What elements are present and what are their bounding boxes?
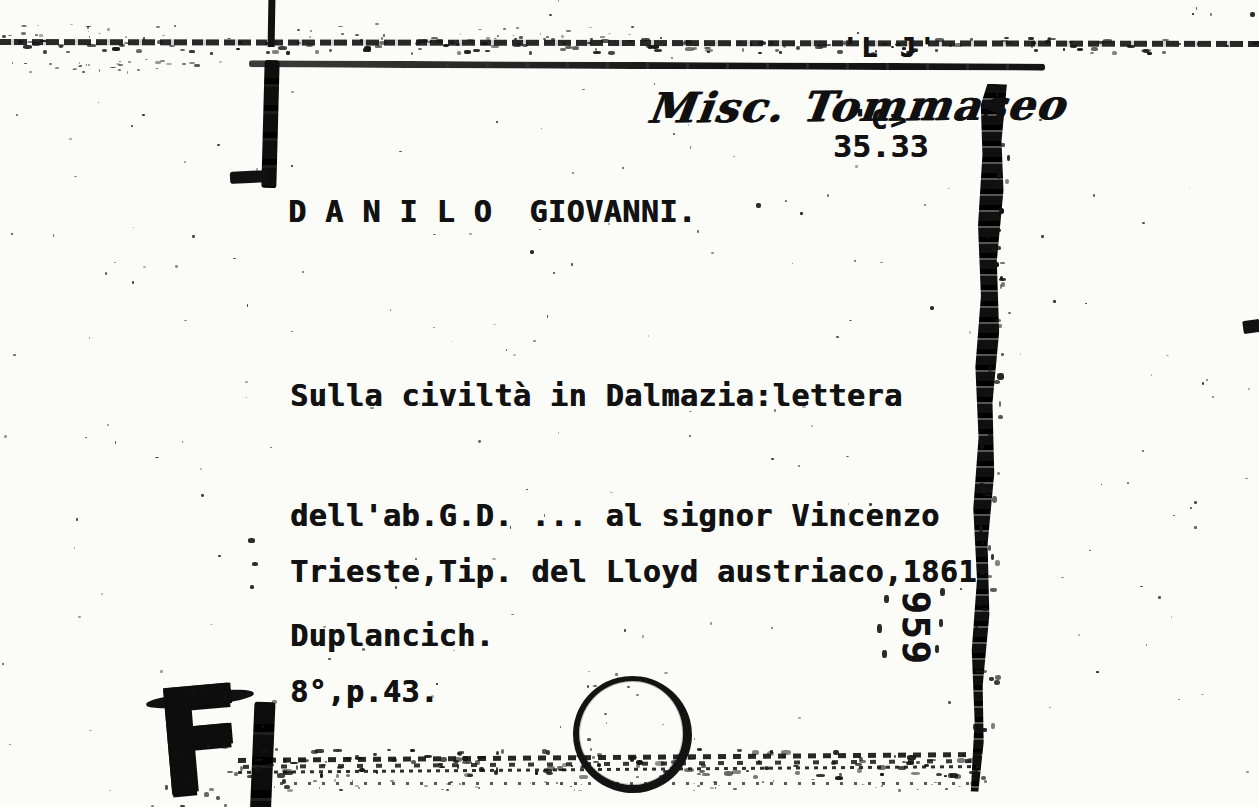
noise-speck	[1048, 37, 1051, 41]
noise-speck	[997, 172, 1001, 179]
noise-speck	[157, 40, 162, 44]
noise-speck	[689, 435, 691, 437]
noise-speck	[530, 250, 534, 254]
noise-speck	[98, 102, 99, 104]
noise-speck	[746, 770, 749, 772]
noise-speck	[311, 750, 318, 754]
noise-speck	[693, 790, 695, 791]
noise-speck	[994, 380, 1000, 384]
noise-speck	[631, 788, 633, 789]
noise-speck	[274, 786, 275, 788]
noise-speck	[990, 197, 995, 200]
noise-speck	[1192, 13, 1194, 14]
noise-speck	[783, 45, 786, 48]
noise-speck	[582, 761, 585, 765]
noise-speck	[410, 749, 415, 752]
noise-speck	[53, 234, 55, 237]
noise-speck	[204, 792, 209, 797]
noise-speck	[924, 764, 929, 767]
noise-speck	[315, 50, 319, 53]
noise-speck	[1069, 41, 1073, 43]
noise-speck	[802, 406, 805, 408]
noise-speck	[945, 788, 947, 789]
noise-speck	[1173, 515, 1175, 516]
noise-speck	[1085, 303, 1087, 304]
noise-speck	[630, 757, 634, 762]
noise-speck	[399, 151, 402, 152]
noise-speck	[461, 751, 464, 753]
noise-speck	[451, 341, 452, 342]
noise-speck	[359, 768, 365, 772]
noise-speck	[438, 763, 443, 766]
noise-speck	[969, 331, 971, 334]
noise-speck	[478, 787, 480, 789]
noise-speck	[931, 784, 933, 786]
noise-speck	[1178, 699, 1180, 700]
noise-speck	[971, 789, 973, 791]
noise-speck	[877, 624, 882, 633]
noise-speck	[948, 701, 951, 704]
noise-speck	[702, 773, 710, 776]
noise-speck	[837, 50, 843, 54]
noise-speck	[112, 47, 120, 50]
noise-speck	[936, 560, 937, 562]
noise-speck	[739, 41, 743, 45]
noise-speck	[119, 44, 125, 48]
noise-speck	[291, 331, 293, 332]
noise-speck	[590, 748, 592, 751]
noise-speck	[985, 575, 991, 578]
noise-speck	[433, 327, 435, 328]
noise-speck	[587, 42, 592, 44]
noise-speck	[601, 39, 609, 42]
noise-speck	[1166, 355, 1169, 356]
noise-speck	[97, 43, 99, 45]
noise-speck	[1206, 379, 1208, 380]
noise-speck	[836, 336, 839, 338]
noise-speck	[431, 37, 438, 39]
noise-speck	[431, 695, 434, 698]
noise-speck	[1001, 143, 1005, 146]
noise-speck	[319, 787, 321, 789]
noise-speck	[984, 553, 988, 558]
noise-speck	[597, 753, 602, 756]
noise-speck	[1049, 707, 1052, 708]
noise-speck	[440, 757, 447, 762]
noise-speck	[800, 212, 803, 215]
noise-speck	[758, 52, 762, 54]
noise-speck	[796, 46, 801, 50]
noise-speck	[255, 767, 261, 772]
noise-speck	[627, 40, 634, 42]
noise-speck	[446, 783, 449, 785]
noise-speck	[881, 43, 889, 46]
noise-speck	[137, 69, 139, 71]
noise-speck	[985, 276, 986, 277]
noise-speck	[948, 773, 953, 778]
noise-speck	[454, 757, 463, 762]
noise-speck	[189, 50, 195, 52]
noise-speck	[927, 759, 936, 761]
noise-speck	[204, 693, 207, 698]
noise-speck	[610, 492, 612, 493]
noise-speck	[513, 45, 522, 48]
noise-speck	[390, 309, 391, 310]
noise-speck	[452, 785, 453, 787]
noise-speck	[553, 272, 555, 274]
noise-speck	[994, 319, 1001, 322]
noise-speck	[256, 168, 258, 171]
noise-speck	[118, 64, 122, 66]
noise-speck	[513, 354, 516, 356]
noise-speck	[969, 771, 975, 774]
noise-speck	[2, 663, 4, 665]
noise-speck	[916, 761, 920, 764]
noise-speck	[88, 64, 91, 66]
noise-speck	[1089, 550, 1091, 551]
noise-speck	[681, 42, 689, 45]
noise-speck	[626, 785, 630, 786]
noise-speck	[395, 586, 397, 589]
noise-speck	[980, 670, 987, 673]
noise-speck	[206, 745, 210, 748]
noise-speck	[24, 63, 27, 64]
noise-speck	[248, 538, 255, 543]
noise-speck	[210, 52, 212, 55]
noise-speck	[648, 335, 650, 337]
noise-speck	[697, 773, 701, 775]
noise-speck	[529, 51, 532, 55]
noise-speck	[627, 791, 631, 792]
noise-speck	[827, 194, 830, 197]
noise-speck	[469, 233, 471, 235]
noise-speck	[935, 49, 937, 52]
noise-speck	[588, 671, 590, 672]
noise-speck	[184, 320, 187, 321]
noise-speck	[628, 34, 631, 35]
noise-speck	[530, 782, 531, 784]
noise-speck	[1189, 187, 1190, 188]
noise-speck	[996, 91, 998, 98]
noise-speck	[697, 230, 699, 232]
noise-speck	[988, 279, 994, 282]
noise-speck	[947, 188, 950, 189]
noise-speck	[991, 554, 994, 560]
noise-speck	[881, 782, 885, 783]
noise-speck	[173, 753, 176, 757]
noise-speck	[979, 525, 983, 531]
noise-speck	[136, 49, 142, 53]
noise-speck	[240, 766, 243, 771]
noise-speck	[107, 28, 110, 31]
noise-speck	[994, 680, 1000, 685]
noise-speck	[713, 781, 716, 783]
noise-speck	[266, 51, 271, 54]
noise-speck	[182, 63, 186, 65]
noise-speck	[269, 30, 273, 32]
noise-speck	[975, 626, 979, 629]
noise-speck	[420, 39, 429, 43]
noise-speck	[558, 432, 559, 435]
noise-speck	[875, 50, 877, 53]
noise-speck	[798, 465, 800, 467]
noise-speck	[962, 754, 966, 756]
noise-speck	[142, 114, 144, 117]
noise-speck	[291, 91, 294, 93]
noise-speck	[419, 403, 420, 405]
noise-speck	[752, 750, 760, 755]
noise-speck	[566, 30, 571, 32]
noise-speck	[143, 37, 144, 40]
noise-speck	[558, 0, 559, 2]
noise-speck	[1097, 41, 1104, 44]
noise-speck	[355, 785, 359, 787]
noise-speck	[1171, 616, 1172, 618]
noise-speck	[857, 768, 862, 772]
noise-speck	[636, 776, 639, 778]
noise-speck	[846, 456, 849, 457]
noise-speck	[970, 38, 973, 41]
noise-speck	[290, 762, 298, 764]
noise-speck	[546, 750, 550, 754]
noise-speck	[145, 59, 148, 60]
noise-speck	[390, 780, 394, 782]
noise-speck	[1034, 49, 1038, 52]
noise-speck	[1020, 353, 1022, 354]
noise-speck	[55, 67, 60, 69]
noise-speck	[1142, 49, 1151, 52]
noise-speck	[985, 494, 992, 496]
noise-speck	[35, 34, 38, 36]
noise-speck	[1007, 155, 1010, 161]
noise-speck	[774, 409, 776, 412]
noise-speck	[861, 784, 865, 785]
noise-speck	[898, 766, 906, 769]
noise-speck	[701, 764, 706, 767]
noise-speck	[973, 724, 976, 730]
noise-speck	[370, 407, 373, 410]
noise-speck	[270, 447, 272, 448]
noise-speck	[1245, 478, 1248, 479]
noise-speck	[986, 480, 988, 482]
noise-speck	[266, 763, 274, 767]
noise-speck	[949, 44, 952, 48]
noise-speck	[535, 771, 537, 774]
noise-speck	[733, 156, 735, 157]
noise-speck	[606, 722, 607, 724]
noise-speck	[182, 441, 183, 443]
noise-speck	[1196, 7, 1197, 9]
noise-speck	[663, 770, 668, 773]
noise-speck	[782, 756, 787, 758]
noise-speck	[697, 785, 700, 787]
noise-speck	[74, 547, 76, 550]
noise-speck	[737, 749, 742, 752]
noise-speck	[362, 648, 365, 651]
noise-speck	[547, 315, 548, 318]
noise-speck	[1210, 13, 1211, 15]
noise-speck	[124, 42, 130, 44]
noise-speck	[344, 757, 353, 759]
noise-speck	[911, 772, 919, 775]
noise-speck	[641, 38, 650, 41]
noise-speck	[89, 337, 91, 339]
noise-speck	[184, 161, 186, 163]
noise-speck	[859, 757, 863, 761]
noise-speck	[338, 26, 342, 28]
noise-speck	[486, 37, 489, 40]
noise-speck	[654, 49, 662, 52]
noise-speck	[341, 33, 344, 34]
noise-speck	[998, 324, 1002, 327]
noise-speck	[765, 767, 769, 770]
noise-speck	[770, 41, 772, 45]
noise-speck	[544, 514, 545, 517]
noise-speck	[1091, 47, 1098, 50]
noise-speck	[223, 695, 227, 699]
noise-speck	[855, 165, 858, 167]
noise-speck	[857, 32, 859, 34]
noise-speck	[286, 51, 290, 55]
noise-speck	[855, 763, 862, 766]
noise-speck	[821, 44, 827, 48]
noise-speck	[958, 786, 961, 788]
noise-speck	[82, 71, 86, 73]
noise-speck	[572, 172, 575, 175]
noise-speck	[1212, 396, 1214, 398]
noise-speck	[233, 258, 235, 259]
noise-speck	[989, 340, 991, 344]
noise-speck	[13, 354, 15, 356]
noise-speck	[128, 61, 131, 63]
noise-speck	[995, 560, 1001, 567]
noise-speck	[516, 27, 518, 28]
noise-speck	[989, 294, 992, 298]
noise-speck	[705, 49, 713, 52]
noise-speck	[219, 61, 223, 63]
noise-speck	[560, 726, 561, 728]
noise-speck	[355, 34, 360, 36]
noise-speck	[98, 33, 101, 34]
noise-speck	[992, 213, 997, 218]
noise-speck	[930, 306, 934, 310]
catalog-card-scan: 'L J' 'C>' Misc. Tommaseo 35.33 D A N I …	[0, 0, 1259, 807]
noise-speck	[236, 48, 240, 50]
noise-speck	[539, 229, 541, 231]
noise-speck	[74, 176, 77, 177]
noise-speck	[88, 31, 89, 33]
noise-speck	[415, 42, 419, 46]
noise-speck	[355, 757, 363, 760]
noise-speck	[493, 324, 496, 326]
noise-speck	[767, 751, 774, 756]
noise-speck	[227, 38, 231, 39]
noise-speck	[467, 39, 474, 42]
noise-speck	[916, 789, 919, 790]
noise-speck	[990, 588, 997, 592]
noise-speck	[684, 768, 694, 772]
noise-speck	[957, 758, 965, 763]
noise-speck	[475, 760, 480, 765]
noise-speck	[8, 35, 12, 36]
noise-speck	[510, 526, 511, 529]
noise-speck	[631, 26, 634, 28]
noise-speck	[478, 440, 481, 443]
noise-speck	[654, 83, 655, 85]
noise-speck	[309, 36, 311, 38]
noise-speck	[593, 51, 602, 54]
noise-speck	[664, 672, 668, 675]
noise-speck	[592, 756, 595, 758]
noise-speck	[997, 246, 1001, 250]
noise-speck	[602, 783, 605, 785]
noise-speck	[991, 723, 995, 729]
noise-speck	[650, 786, 652, 787]
noise-speck	[988, 433, 993, 437]
noise-speck	[478, 29, 482, 30]
noise-speck	[162, 35, 166, 36]
noise-speck	[980, 445, 983, 449]
noise-speck	[1162, 39, 1169, 42]
noise-speck	[453, 650, 455, 652]
noise-speck	[485, 50, 490, 52]
noise-speck	[997, 182, 1000, 185]
noise-speck	[936, 773, 942, 777]
noise-speck	[40, 40, 47, 42]
noise-speck	[296, 42, 301, 44]
noise-speck	[673, 133, 675, 134]
noise-speck	[375, 45, 382, 47]
noise-speck	[252, 562, 258, 566]
noise-speck	[1158, 596, 1161, 598]
noise-speck	[169, 45, 176, 47]
noise-speck	[998, 415, 1003, 419]
noise-speck	[818, 44, 821, 47]
noise-speck	[462, 761, 472, 765]
noise-speck	[23, 45, 32, 48]
noise-speck	[333, 749, 342, 751]
noise-speck	[753, 775, 758, 779]
noise-speck	[981, 728, 986, 731]
noise-speck	[381, 37, 383, 39]
noise-speck	[110, 67, 116, 68]
noise-speck	[424, 785, 427, 787]
noise-speck	[1077, 48, 1084, 51]
noise-speck	[245, 381, 247, 383]
noise-speck	[456, 43, 460, 46]
noise-speck	[579, 775, 587, 778]
noise-speck	[526, 489, 529, 490]
noise-speck	[512, 35, 515, 36]
noise-speck	[283, 758, 287, 763]
noise-speck	[306, 44, 313, 47]
noise-speck	[608, 223, 610, 225]
noise-speck	[311, 635, 313, 637]
noise-speck	[481, 42, 488, 45]
noise-speck	[272, 50, 278, 53]
noise-speck	[831, 761, 837, 765]
noise-speck	[261, 780, 263, 781]
noise-speck	[275, 748, 278, 751]
noise-speck	[18, 40, 22, 43]
noise-speck	[811, 779, 815, 780]
noise-speck	[694, 738, 695, 740]
noise-speck	[988, 166, 994, 171]
noise-speck	[1112, 51, 1117, 55]
photocopy-noise-layer	[0, 0, 1259, 807]
noise-speck	[1005, 179, 1009, 184]
noise-speck	[1031, 45, 1033, 48]
